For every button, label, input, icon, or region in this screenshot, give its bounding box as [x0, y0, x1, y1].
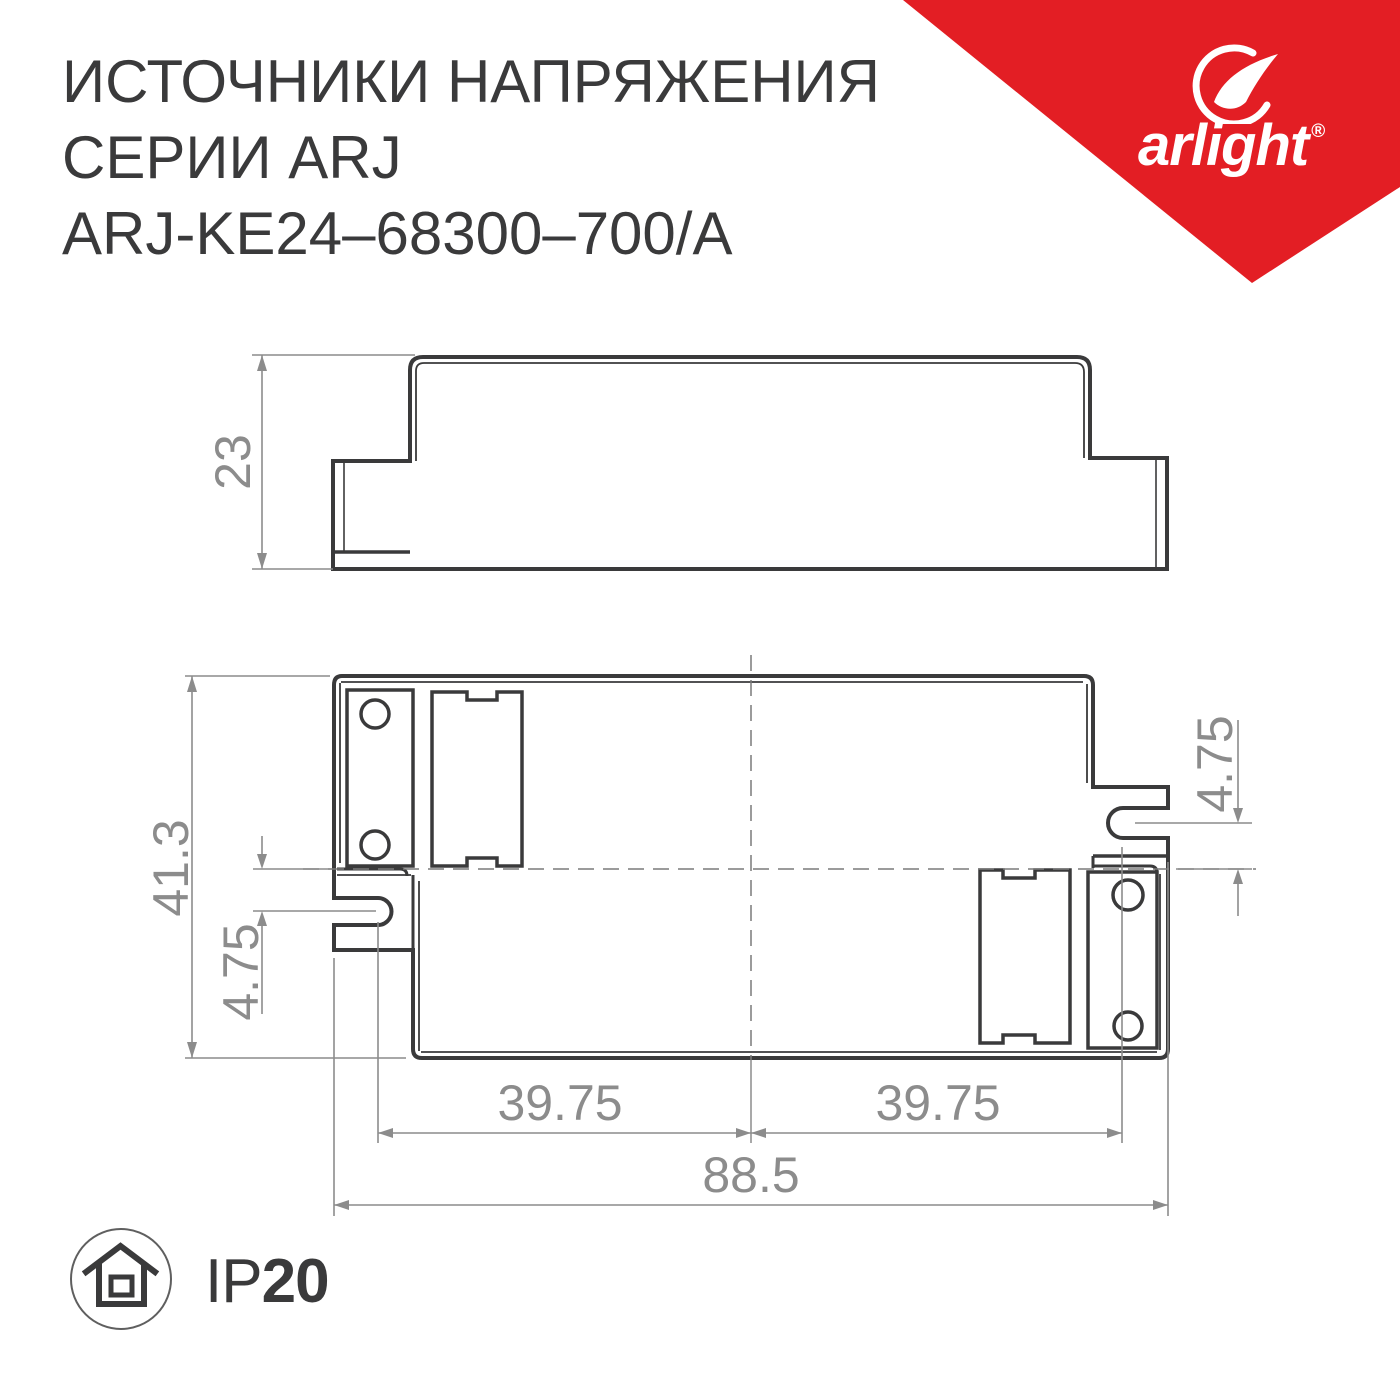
- screw-hole: [361, 700, 389, 728]
- dimension-label-39-75-right: 39.75: [875, 1075, 1000, 1131]
- ip-value: 20: [262, 1247, 329, 1316]
- dimension-label-39-75-left: 39.75: [497, 1075, 622, 1131]
- top-view-drawing: 41.3 4.75 4.75 39.75 39.75 88.5: [143, 655, 1256, 1216]
- dimension-label-4-75-right: 4.75: [1187, 715, 1243, 812]
- right-terminal-block: [980, 870, 1070, 1043]
- side-view-drawing: 23: [205, 355, 1167, 569]
- datasheet-page: ИСТОЧНИКИ НАПРЯЖЕНИЯ СЕРИИ ARJ ARJ-KE24–…: [0, 0, 1400, 1400]
- technical-drawings: 23: [0, 0, 1400, 1400]
- screw-hole: [1114, 1012, 1142, 1040]
- left-terminal-block: [432, 692, 522, 866]
- ip-prefix: IP: [205, 1247, 262, 1316]
- dimension-label-4-75-left: 4.75: [213, 923, 269, 1020]
- screw-hole: [361, 831, 389, 859]
- indoor-house-icon: [86, 1246, 155, 1304]
- ip-rating-badge: IP20: [71, 1229, 329, 1329]
- dimension-label-41-3: 41.3: [143, 819, 199, 916]
- screw-hole: [1113, 880, 1143, 910]
- ip-rating-text: IP20: [205, 1247, 329, 1316]
- left-mounting-flange: [347, 690, 413, 866]
- dimension-label-88-5: 88.5: [702, 1147, 799, 1203]
- dimension-label-23: 23: [205, 434, 261, 490]
